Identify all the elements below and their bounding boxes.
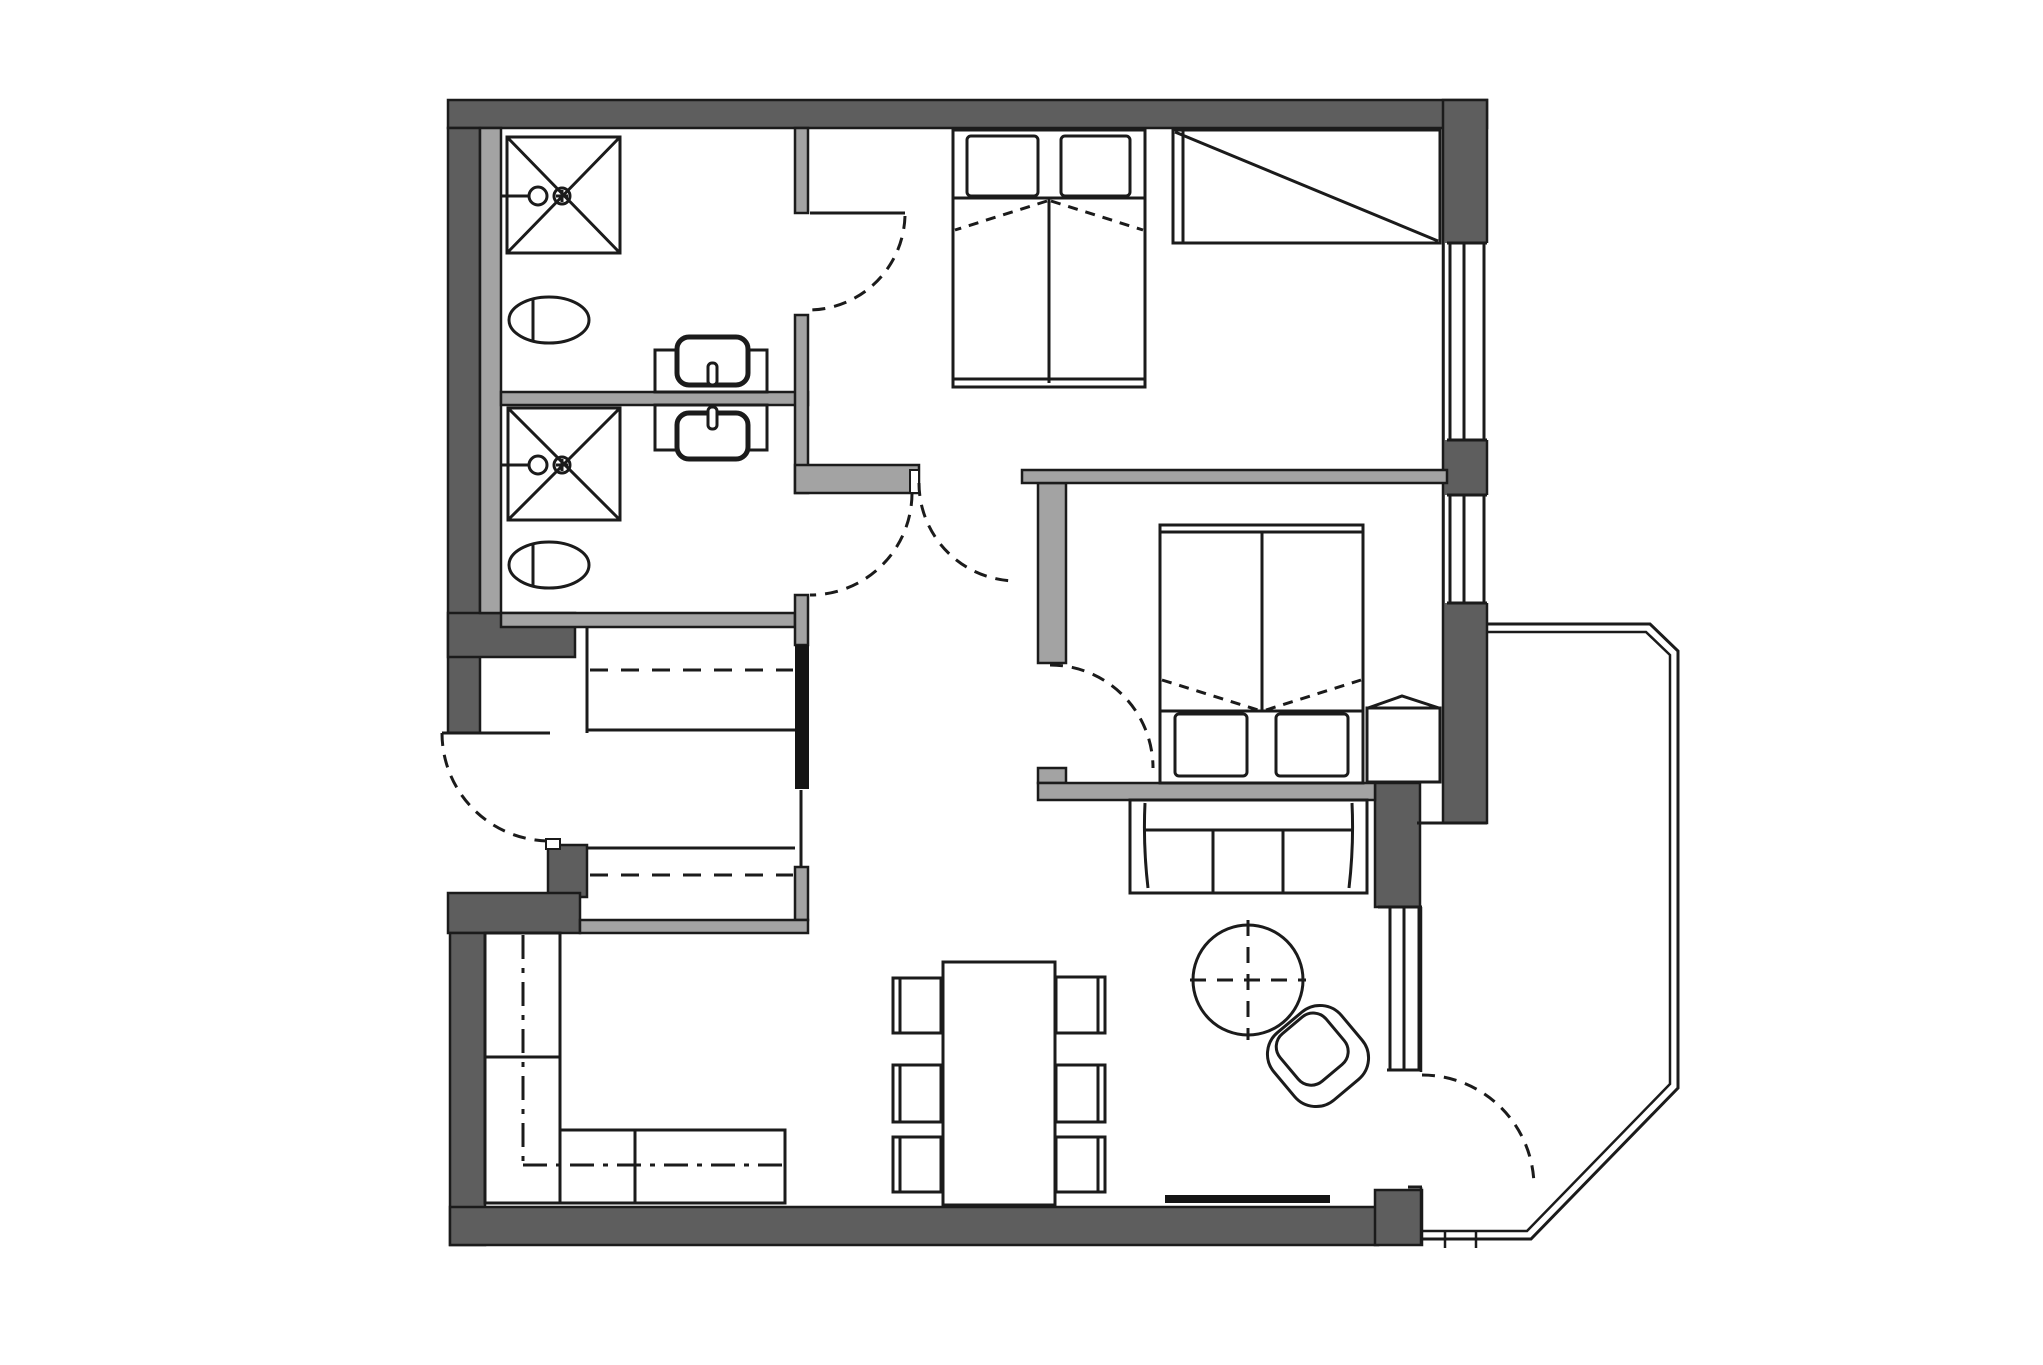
pillow: [967, 136, 1038, 196]
wall-window-pier: [1375, 783, 1420, 907]
door-jamb: [546, 839, 560, 849]
partition-bath-east-a: [795, 128, 808, 213]
door-swing-arc: [1422, 1075, 1534, 1187]
double-bed-2: [1160, 525, 1363, 783]
toilet-1: [509, 297, 589, 343]
partition-bath2-south: [501, 613, 795, 627]
armchair-seat: [1269, 1006, 1355, 1092]
partition-bed2-south: [1038, 783, 1375, 800]
bathroom-1: [502, 137, 767, 392]
nightstand-outline: [1367, 708, 1440, 782]
shower-1: [502, 137, 620, 253]
toilet-bowl: [509, 297, 589, 343]
wall-top: [448, 100, 1487, 128]
door-swing-arc: [442, 733, 550, 841]
wall-right: [1443, 100, 1487, 823]
toilet-2: [509, 542, 589, 588]
basin-tap-icon: [708, 363, 717, 385]
corner-sofa-vertical: [485, 933, 560, 1203]
corner-sofa: [485, 933, 785, 1203]
bathroom-1-door: [810, 213, 905, 310]
entrance-door: [442, 733, 560, 849]
partition-bedrooms-divider: [1022, 470, 1447, 483]
partition-bed2-west-stub: [1038, 768, 1066, 783]
hall: [587, 628, 809, 875]
partition-bath-east-c: [795, 595, 808, 645]
dining-chairs-left: [893, 978, 941, 1192]
washbasin-2: [655, 405, 767, 459]
partition-closetB-east: [795, 867, 808, 920]
threshold-strip: [1165, 1195, 1330, 1203]
sofa-3seat: [1130, 800, 1367, 893]
basin-tap-icon: [708, 407, 717, 429]
door-swing-arc: [1050, 665, 1153, 768]
window-openings: [1445, 243, 1489, 603]
bedroom-1: [953, 130, 1440, 387]
partition-left-lining: [480, 128, 501, 613]
wardrobe-diagonal: [1175, 132, 1438, 241]
partition-closetB-south: [580, 920, 808, 933]
washbasin-1: [655, 337, 767, 392]
bedroom-2-door: [1050, 665, 1153, 768]
wall-step-band: [448, 893, 580, 933]
floor-plan-page: [0, 0, 2043, 1365]
partition-bed2-west: [1038, 483, 1066, 663]
sliding-door-bar: [795, 645, 809, 789]
pillow: [1175, 714, 1247, 776]
bedroom-1-window-opening: [1445, 243, 1489, 440]
sofa-arms: [1144, 803, 1352, 888]
toilet-bowl: [509, 542, 589, 588]
door-jamb: [910, 470, 919, 493]
shower-head-icon: [529, 187, 547, 205]
balcony-door: [1408, 1075, 1534, 1187]
shower-head-icon: [529, 456, 547, 474]
double-bed-1: [953, 130, 1145, 387]
pillow: [1276, 714, 1348, 776]
doors: [442, 213, 1534, 1187]
wall-corner-balconydoor: [1375, 1190, 1422, 1245]
door-swing-arc: [810, 216, 905, 310]
dining-chairs-right: [1056, 977, 1105, 1192]
floor-plan-drawing: [0, 0, 2043, 1365]
nightstand: [1367, 696, 1440, 782]
window-frame: [1378, 907, 1422, 1070]
bathroom-2: [502, 405, 767, 588]
bedroom-2: [1160, 525, 1440, 783]
bedroom-1-door: [919, 483, 1017, 581]
partition-hall-north: [795, 465, 919, 493]
sofa-outline: [1130, 800, 1367, 893]
dining-set: [893, 962, 1105, 1205]
living-dining: [485, 800, 1380, 1205]
shower-2: [502, 408, 620, 520]
wall-left-lower: [450, 933, 485, 1245]
dining-table: [943, 962, 1055, 1205]
wall-entry-stub: [548, 845, 587, 897]
armchair: [1256, 994, 1380, 1118]
door-swing-arc: [919, 483, 1017, 581]
door-swing-arc: [810, 493, 912, 595]
nightstand-peak: [1368, 696, 1439, 708]
bedroom-2-window-opening: [1445, 495, 1489, 603]
pillow: [1061, 136, 1130, 196]
wall-bottom: [450, 1207, 1378, 1245]
sofa-cushion-dividers: [1213, 830, 1283, 893]
wardrobe: [1173, 130, 1440, 243]
partition-bath-divider: [501, 392, 808, 405]
